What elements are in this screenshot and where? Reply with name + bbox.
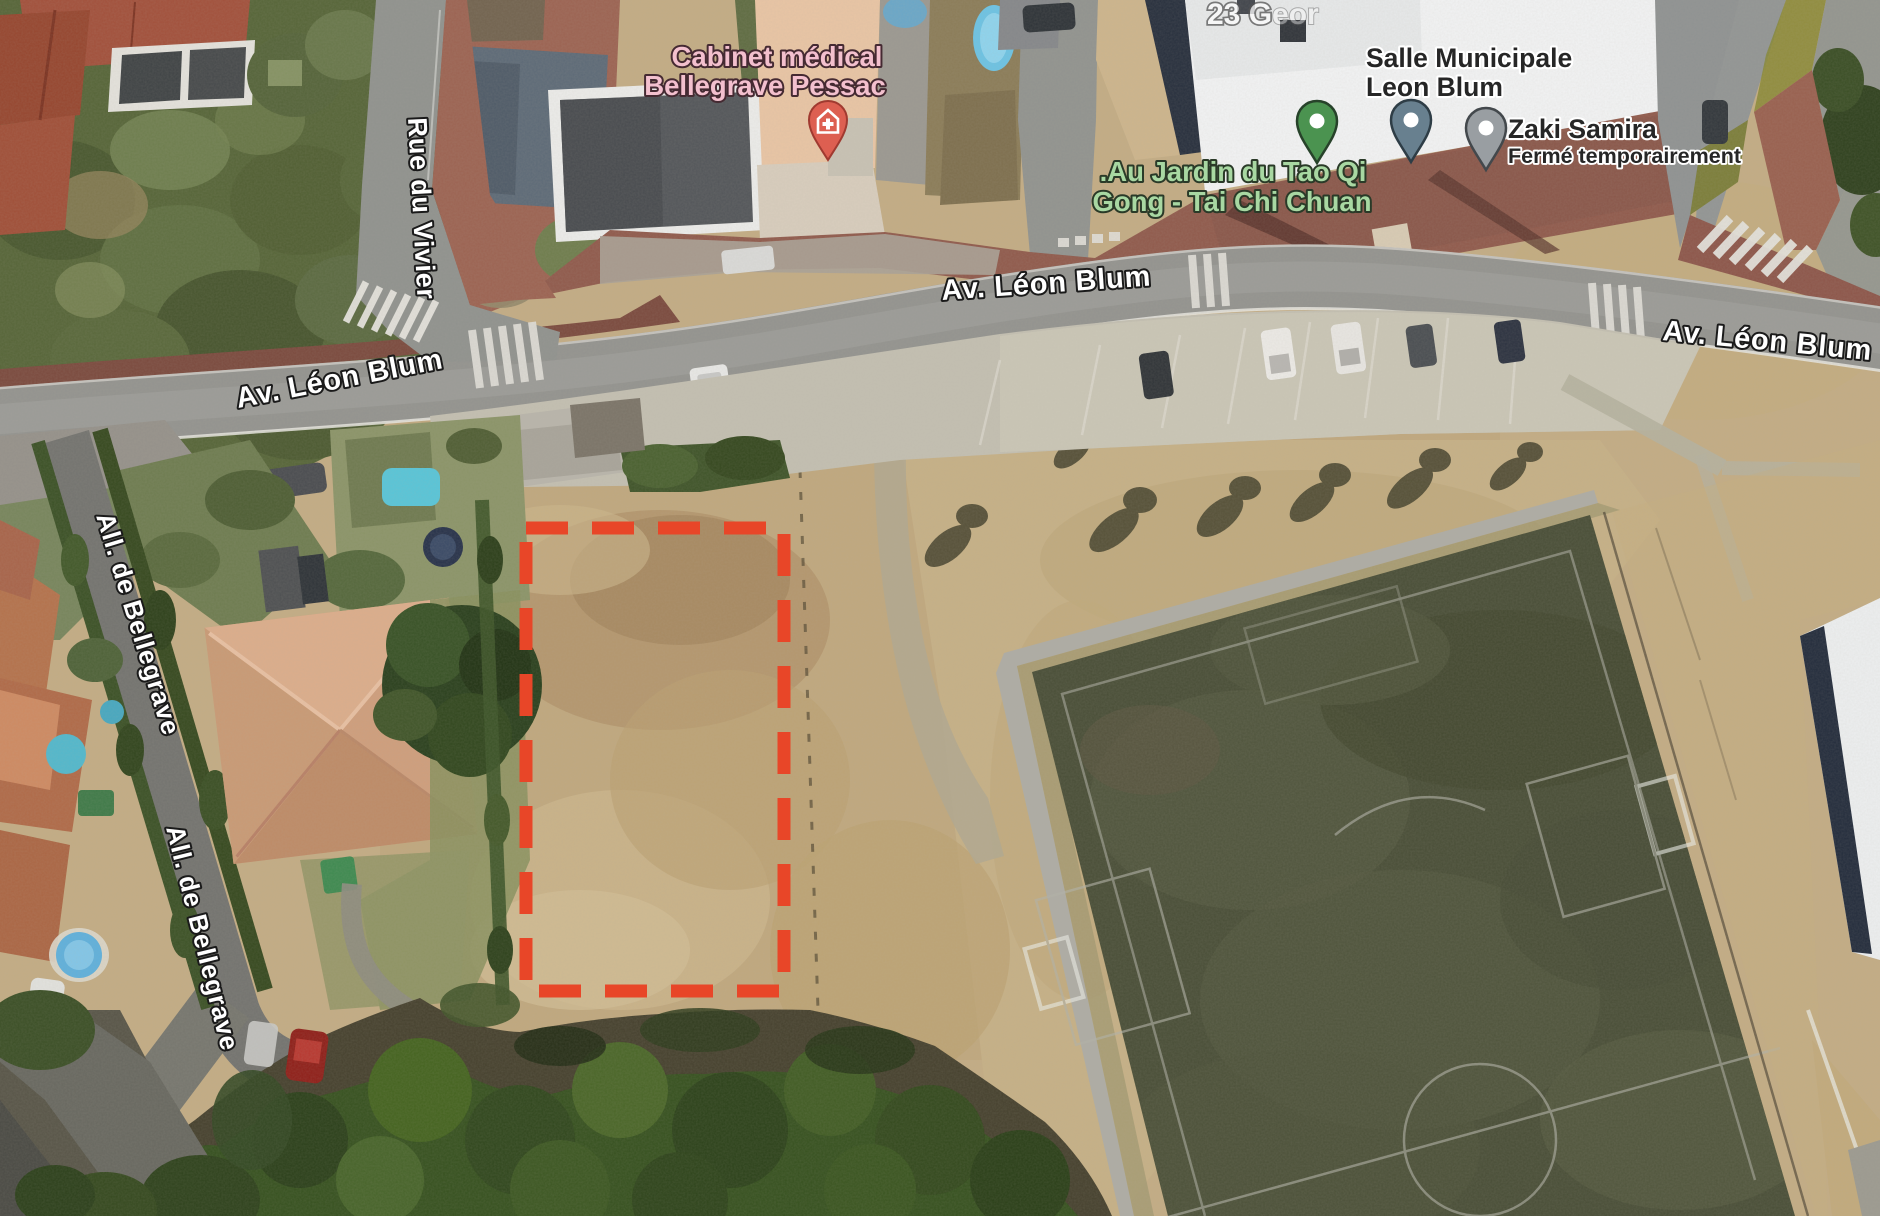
svg-text:.Au Jardin du Tao Qi: .Au Jardin du Tao Qi xyxy=(1100,156,1367,187)
svg-text:Cabinet médical: Cabinet médical xyxy=(672,41,883,72)
svg-text:Salle Municipale: Salle Municipale xyxy=(1366,43,1572,73)
svg-text:Gong - Tai Chi Chuan: Gong - Tai Chi Chuan xyxy=(1092,186,1371,217)
svg-text:23 Geor: 23 Geor xyxy=(1207,0,1319,31)
svg-text:Fermé temporairement: Fermé temporairement xyxy=(1508,144,1741,168)
svg-text:Leon Blum: Leon Blum xyxy=(1366,72,1503,102)
svg-text:Zaki Samira: Zaki Samira xyxy=(1508,114,1657,144)
svg-text:Bellegrave Pessac: Bellegrave Pessac xyxy=(644,70,886,101)
